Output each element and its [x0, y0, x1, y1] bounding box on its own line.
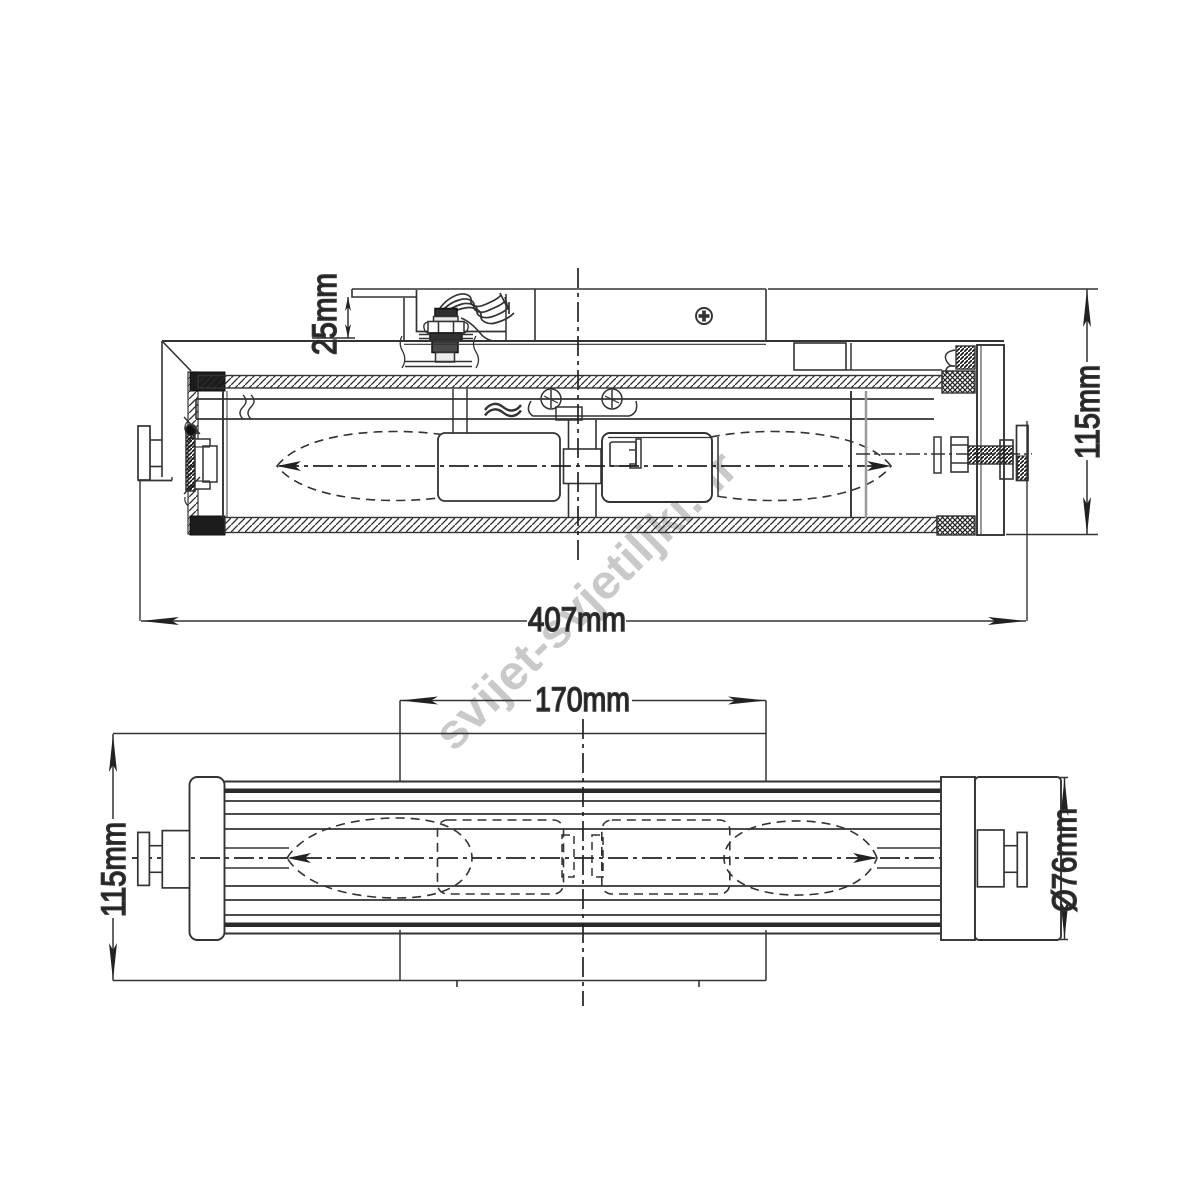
svg-text:Ø76mm: Ø76mm — [1046, 808, 1084, 912]
svg-text:170mm: 170mm — [535, 681, 630, 719]
svg-text:407mm: 407mm — [528, 601, 626, 639]
svg-text:25mm: 25mm — [306, 273, 344, 355]
svg-text:115mm: 115mm — [95, 822, 133, 917]
svg-text:115mm: 115mm — [1069, 365, 1107, 459]
